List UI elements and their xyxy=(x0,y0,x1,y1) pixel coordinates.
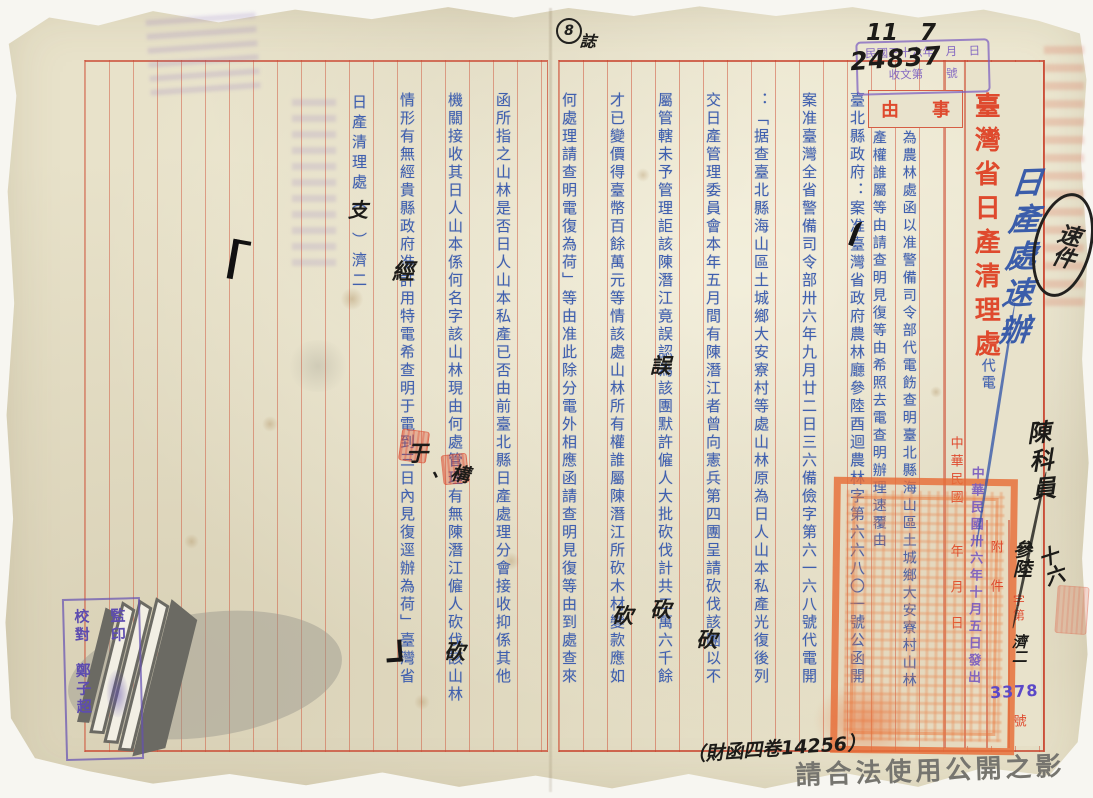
number-field-suffix: 號 xyxy=(1010,714,1026,727)
paper-fold-crease xyxy=(549,8,552,792)
signature-line-post: ）濟二 xyxy=(350,232,368,352)
stain-spot xyxy=(636,168,650,182)
stain-spot xyxy=(262,416,278,432)
page-number-circle: 8 xyxy=(556,18,582,44)
body-column-2: 案准臺灣全省警備司令部卅六年九月廿二日三六備儉字第六一六八號代電開 xyxy=(800,92,818,747)
verification-stamp: 監印 校對 鄭子超 xyxy=(62,597,144,761)
stain-spot xyxy=(930,386,942,398)
handwritten-close-bracket xyxy=(385,639,402,662)
correction-wu: 誤 xyxy=(650,350,671,380)
correction-zhi: 支 xyxy=(348,194,368,223)
attachment-label: 附件 xyxy=(987,540,1003,618)
scanned-document-canvas: 臺灣省日產清理處 代電 事 由 為農林處函以准警備司令部代電飭查明臺北縣海山區土… xyxy=(0,0,1093,798)
correction-jing: 經 xyxy=(392,254,414,286)
verify-proofreader-label: 校對 鄭子超 xyxy=(72,608,94,758)
correction-kan-3: 砍 xyxy=(612,600,633,630)
stain-spot xyxy=(414,694,430,710)
verify-seal-keeper-label: 監印 xyxy=(108,607,127,645)
receipt-month-handwritten: 11 xyxy=(866,20,898,46)
subject-label-char-right: 事 xyxy=(932,96,950,122)
correction-kan-1: 砍 xyxy=(696,624,717,654)
file-number-stamp: 3378 xyxy=(990,681,1039,703)
correction-kan-4: 砍 xyxy=(444,636,465,666)
body-column-7: 何處理請查明電復為荷」等由准此除分電外相應函請查明見復等由到處查來 xyxy=(560,92,578,747)
stain-spot xyxy=(184,534,199,549)
verify-signature-smudge xyxy=(106,669,129,718)
correction-yu: 于 xyxy=(406,436,428,468)
usage-watermark-text: 請合法使用公開之影像 xyxy=(795,745,1093,798)
small-red-chop xyxy=(1054,585,1089,635)
circled-note-text: 速件 xyxy=(1044,219,1082,270)
faint-purple-bleedthrough xyxy=(292,96,336,266)
subject-label-char-left: 由 xyxy=(881,96,899,122)
body-column-5: 屬管轄未予管理詎該陳潛江竟誤認為該團默許僱人大批砍伐計共二萬六千餘 xyxy=(656,92,674,747)
faint-purple-marks xyxy=(145,10,260,95)
body-column-8: 函所指之山林是否日人山本私產已否由前臺北縣日產處理分會接收抑係其他 xyxy=(494,92,512,747)
correction-kan-2: 砍 xyxy=(650,594,671,624)
doc-type-label: 代電 xyxy=(979,358,996,392)
page-number-text: 8 xyxy=(564,23,574,39)
page-note-char: 誌 xyxy=(579,27,597,52)
series-branch-handwritten: 濟二 xyxy=(1009,634,1030,664)
subject-label-box: 事 由 xyxy=(868,90,963,128)
smudge xyxy=(286,340,350,392)
body-column-3: ：「据查臺北縣海山區土城鄉大安寮村等處山林原為日人山本私產光復後列 xyxy=(752,92,770,747)
body-column-6: 才已變價得臺幣百餘萬元等情該處山林所有權誰屬陳潛江所砍木材變款應如 xyxy=(608,92,626,747)
